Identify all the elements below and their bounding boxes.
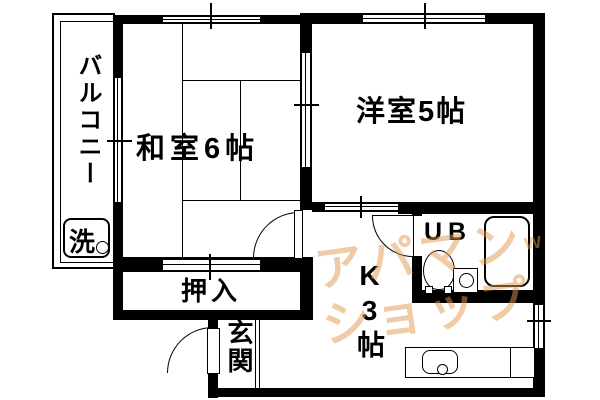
door-arc-washitsu-kitchen	[253, 212, 299, 258]
balcony-inner-line-bottom	[60, 262, 113, 263]
washitsu-label: 和室6帖	[136, 125, 259, 167]
wall-oshiire-bottom	[115, 310, 303, 320]
wall-washitsu-oshiire-left	[123, 258, 163, 272]
door-arc-ub	[372, 216, 413, 257]
unit-bath-label: UB	[424, 218, 472, 247]
sliding-door-oshiire	[163, 258, 260, 272]
toilet-base-left	[425, 286, 433, 294]
toilet-base-right	[444, 286, 452, 294]
ub-sink-basin-icon	[459, 273, 474, 288]
wall-top-youshitsu-left	[312, 13, 363, 24]
wall-ub-top	[422, 202, 533, 214]
bathtub-icon	[484, 216, 530, 287]
washer-faucet-icon	[96, 241, 109, 254]
door-leaf-washitsu-kitchen	[294, 210, 303, 259]
kitchen-sink-drain-icon	[437, 364, 448, 375]
sliding-door-washitsu-youshitsu	[300, 53, 312, 167]
wall-ub-left-upper	[412, 202, 422, 216]
tatami-line-h1	[182, 80, 300, 81]
kitchen-label: K3帖	[349, 260, 389, 362]
wall-kitchen-top-left	[312, 202, 325, 212]
door-jamb-ub	[413, 216, 414, 256]
wall-washitsu-youshitsu-top	[300, 13, 312, 53]
genkan-step-line-2	[259, 320, 260, 388]
wall-washitsu-oshiire-right	[260, 258, 300, 272]
youshitsu-label: 洋室5帖	[356, 88, 467, 130]
wall-left-lower	[113, 202, 123, 320]
tick-window-youshitsu-top	[424, 3, 426, 29]
balcony-inner-line-top	[60, 21, 113, 22]
tatami-line-h2	[182, 200, 300, 201]
apartment-floorplan: バルコニー 洗	[0, 0, 600, 400]
tick-sliding-door-rooms	[294, 104, 319, 106]
window-kitchen-right	[533, 305, 545, 348]
tick-window-balcony	[107, 140, 132, 142]
balcony-label: バルコニー	[70, 53, 105, 188]
washer-label: 洗	[69, 222, 95, 259]
wall-genkan-left-lower	[208, 372, 218, 398]
tick-window-kitchen-right	[527, 320, 551, 322]
kitchen-counter-divider	[510, 347, 511, 378]
genkan-label: 玄関	[221, 319, 258, 375]
oshiire-label: 押入	[181, 271, 241, 308]
door-leaf-entrance	[207, 328, 220, 374]
toilet-icon	[423, 250, 455, 290]
tick-sliding-door-kitchen	[360, 196, 362, 218]
wall-left-upper	[113, 15, 123, 78]
wall-washitsu-youshitsu-bottom	[300, 167, 312, 210]
balcony-inner-line-left	[60, 21, 61, 262]
wall-bottom	[208, 388, 545, 397]
wall-right-upper	[533, 13, 545, 305]
tick-window-washitsu-top	[210, 3, 212, 29]
